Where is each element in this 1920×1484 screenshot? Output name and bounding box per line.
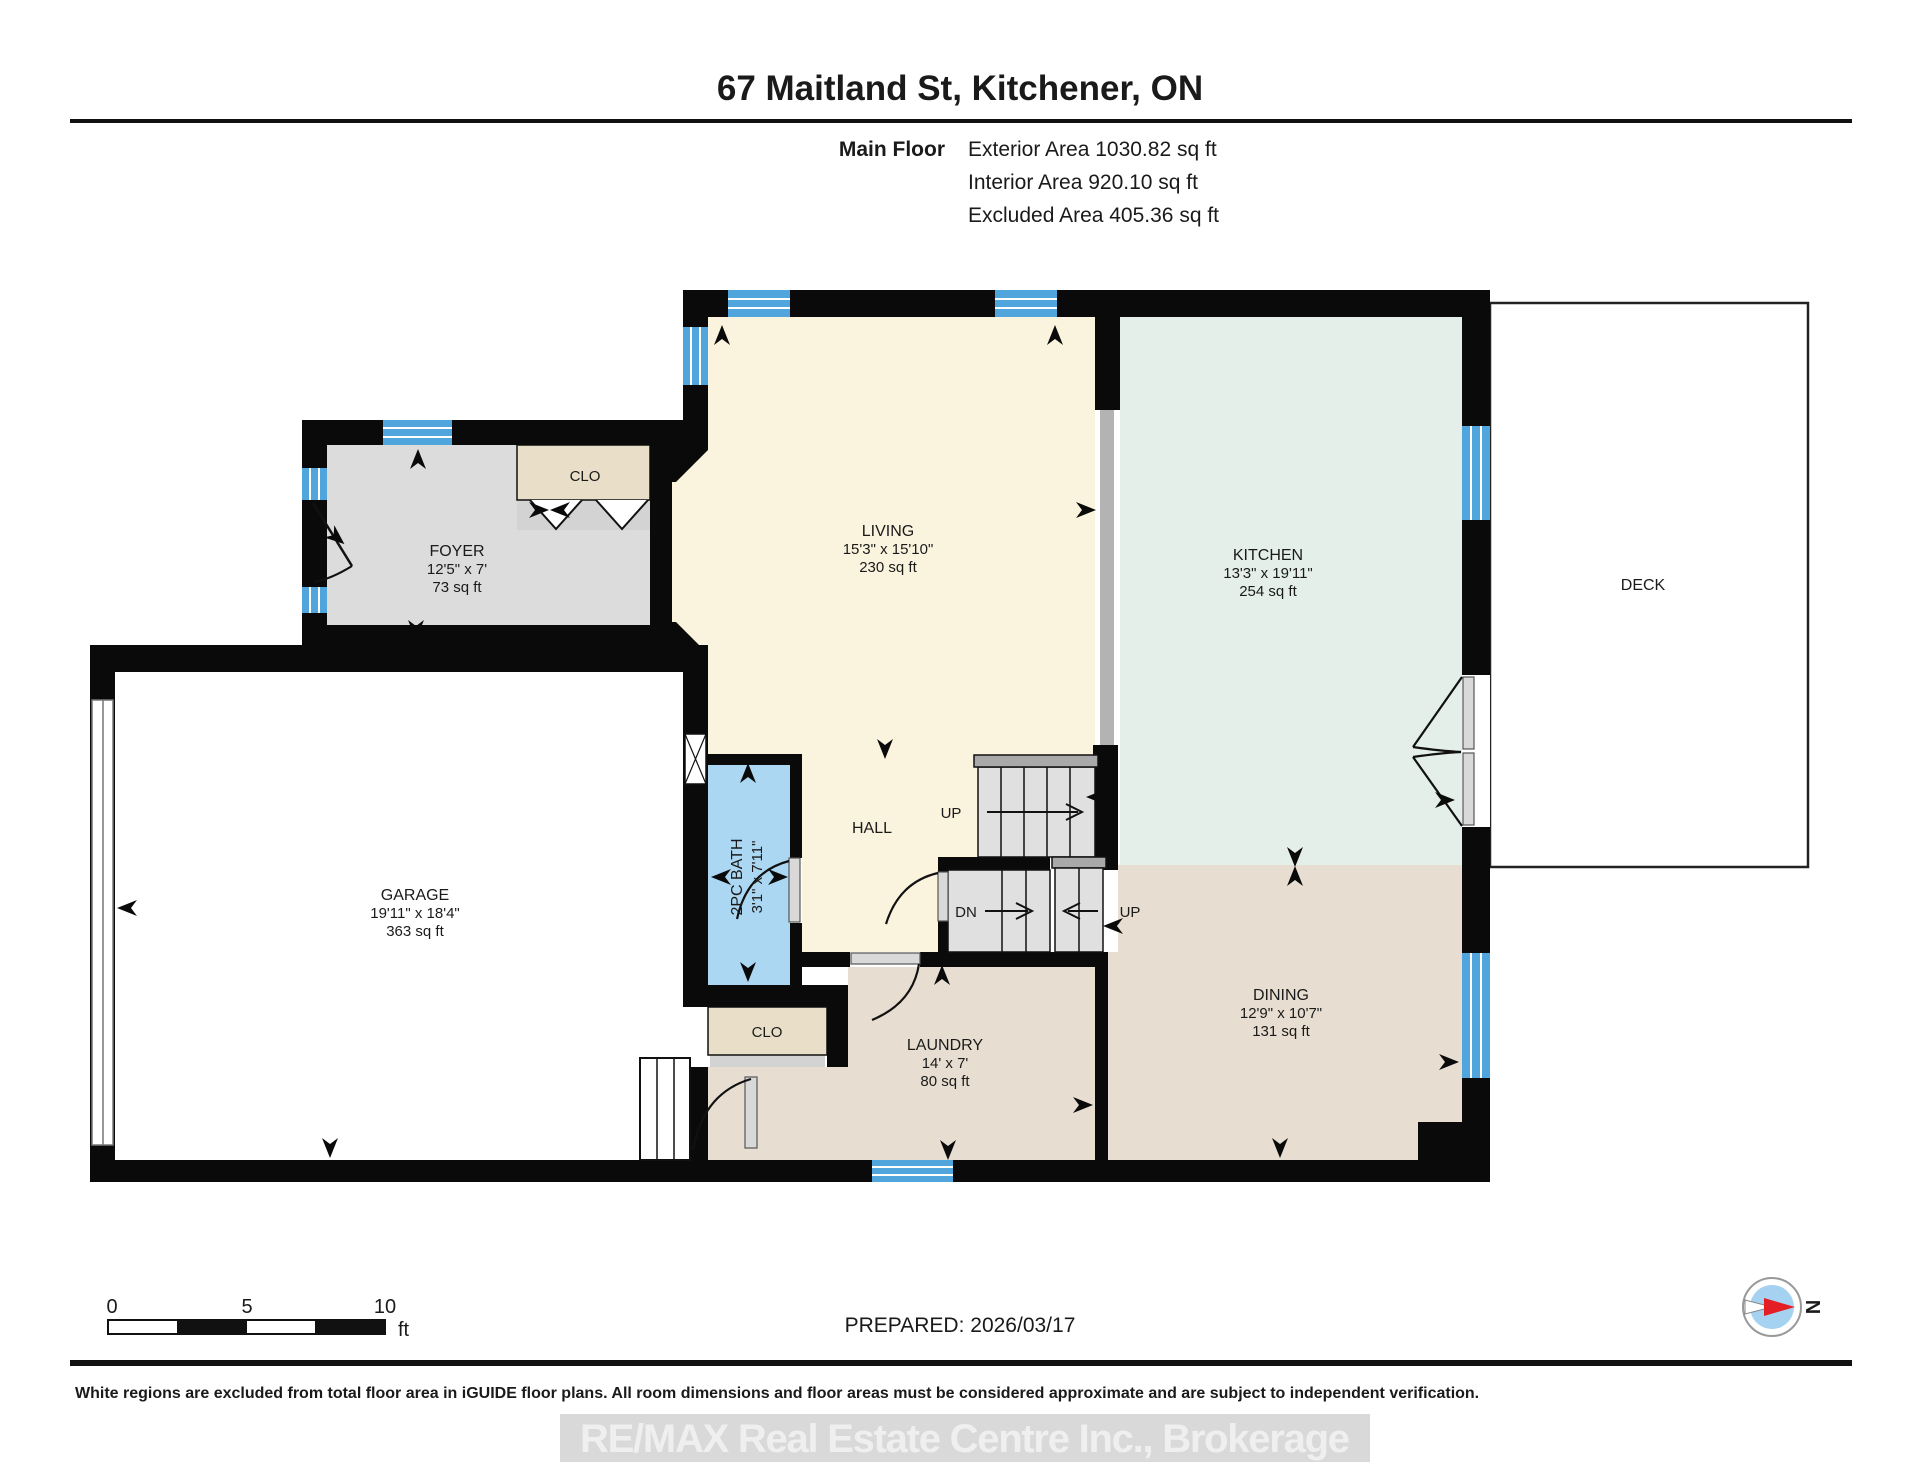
- garage-man-door: [685, 734, 706, 784]
- garage-name: GARAGE: [381, 887, 449, 904]
- window: [1462, 426, 1490, 520]
- disclaimer-text: White regions are excluded from total fl…: [75, 1385, 1479, 1402]
- window: [302, 587, 327, 613]
- wall-dn-left-upper: [938, 857, 948, 872]
- wall-laundry-closet-right: [827, 985, 848, 1067]
- garage-door: [92, 700, 113, 1145]
- page-title: 67 Maitland St, Kitchener, ON: [717, 69, 1203, 108]
- prepared-date: PREPARED: 2026/03/17: [845, 1314, 1076, 1337]
- direction-marker-icon: [117, 900, 137, 916]
- bath-name: 2PC BATH: [729, 838, 746, 915]
- wall-bath-top: [708, 754, 802, 765]
- wall-partition-top: [1095, 317, 1120, 410]
- floor-label: Main Floor: [839, 138, 945, 161]
- scale-10: 10: [374, 1296, 396, 1318]
- laundry-area: 80 sq ft: [920, 1073, 970, 1090]
- laundry-name: LAUNDRY: [907, 1037, 984, 1054]
- compass: N: [1743, 1278, 1823, 1336]
- wall-bath-right-upper: [790, 754, 802, 858]
- deck-label: DECK: [1621, 577, 1666, 594]
- wall-bottom: [90, 1160, 1490, 1182]
- excluded-area-stat: Excluded Area 405.36 sq ft: [968, 204, 1219, 227]
- foyer-area: 73 sq ft: [432, 579, 482, 596]
- window: [995, 290, 1057, 317]
- wall-dining-notch: [1418, 1122, 1490, 1182]
- dining-dims: 12'9" x 10'7": [1240, 1005, 1322, 1022]
- window: [1462, 953, 1490, 1078]
- scale-5: 5: [241, 1296, 252, 1318]
- foyer-closet-label: CLO: [570, 468, 601, 485]
- header: 67 Maitland St, Kitchener, ON Main Floor…: [70, 69, 1852, 227]
- wall-hall-laundry-right: [920, 952, 938, 967]
- window: [383, 420, 452, 445]
- wall-stairs-bottom: [938, 952, 1108, 967]
- foyer-name: FOYER: [429, 543, 484, 560]
- deck-area: DECK: [1490, 303, 1808, 867]
- living-name: LIVING: [862, 523, 914, 540]
- hall-label: HALL: [852, 820, 892, 837]
- wall-foyer-living: [650, 478, 672, 626]
- kitchen-dims: 13'3" x 19'11": [1223, 565, 1313, 582]
- wall-left-spine: [683, 645, 708, 1007]
- stairs-up-label: UP: [941, 805, 962, 822]
- wall-garage-top: [90, 645, 708, 672]
- footer: 0 5 10 ft PREPARED: 2026/03/17 N White r…: [70, 1278, 1852, 1462]
- garage-area: 363 sq ft: [386, 923, 444, 940]
- header-rule: [70, 119, 1852, 123]
- scale-bar: 0 5 10 ft: [106, 1296, 409, 1341]
- bath-dims: 3'1" x 7'11": [749, 841, 766, 914]
- compass-n-label: N: [1801, 1300, 1823, 1314]
- window: [872, 1160, 953, 1182]
- scale-0: 0: [106, 1296, 117, 1318]
- stairs-lower-up-label: UP: [1120, 904, 1141, 921]
- stairs-lower-up: [1052, 857, 1106, 952]
- window: [683, 327, 708, 385]
- foyer-dims: 12'5" x 7': [427, 561, 487, 578]
- laundry-dims: 14' x 7': [922, 1055, 969, 1072]
- wall-dn-left-lower: [938, 921, 948, 952]
- window: [302, 468, 327, 500]
- stairs-main-up: [974, 755, 1098, 857]
- halfwall-living-kitchen: [1100, 410, 1114, 745]
- watermark: RE/MAX Real Estate Centre Inc., Brokerag…: [560, 1414, 1370, 1462]
- dining-name: DINING: [1253, 987, 1309, 1004]
- garage-dims: 19'11" x 18'4": [370, 905, 460, 922]
- kitchen-area: 254 sq ft: [1239, 583, 1297, 600]
- floor-plan-canvas: 67 Maitland St, Kitchener, ON Main Floor…: [0, 0, 1920, 1484]
- wall-top: [683, 290, 1490, 317]
- exterior-area-stat: Exterior Area 1030.82 sq ft: [968, 138, 1217, 161]
- watermark-text: RE/MAX Real Estate Centre Inc., Brokerag…: [580, 1417, 1350, 1461]
- window: [728, 290, 790, 317]
- dining-area: 131 sq ft: [1252, 1023, 1310, 1040]
- living-dims: 15'3" x 15'10": [843, 541, 934, 558]
- garage-label: GARAGE 19'11" x 18'4" 363 sq ft: [370, 887, 460, 940]
- kitchen-name: KITCHEN: [1233, 547, 1303, 564]
- foyer-label: FOYER 12'5" x 7' 73 sq ft: [427, 543, 487, 596]
- exterior-steps: [640, 1058, 690, 1160]
- wall-stairs-mid: [938, 857, 1050, 870]
- living-area: 230 sq ft: [859, 559, 917, 576]
- wall-laundry-dining: [1095, 953, 1108, 1160]
- wall-bath-right-lower: [790, 923, 802, 985]
- stairs-dn-label: DN: [955, 904, 977, 921]
- direction-marker-icon: [322, 1138, 338, 1158]
- wall-foyer-top: [302, 420, 683, 445]
- scale-unit: ft: [398, 1319, 410, 1341]
- laundry-closet-label: CLO: [752, 1024, 783, 1041]
- footer-rule: [70, 1360, 1852, 1366]
- interior-area-stat: Interior Area 920.10 sq ft: [968, 171, 1198, 194]
